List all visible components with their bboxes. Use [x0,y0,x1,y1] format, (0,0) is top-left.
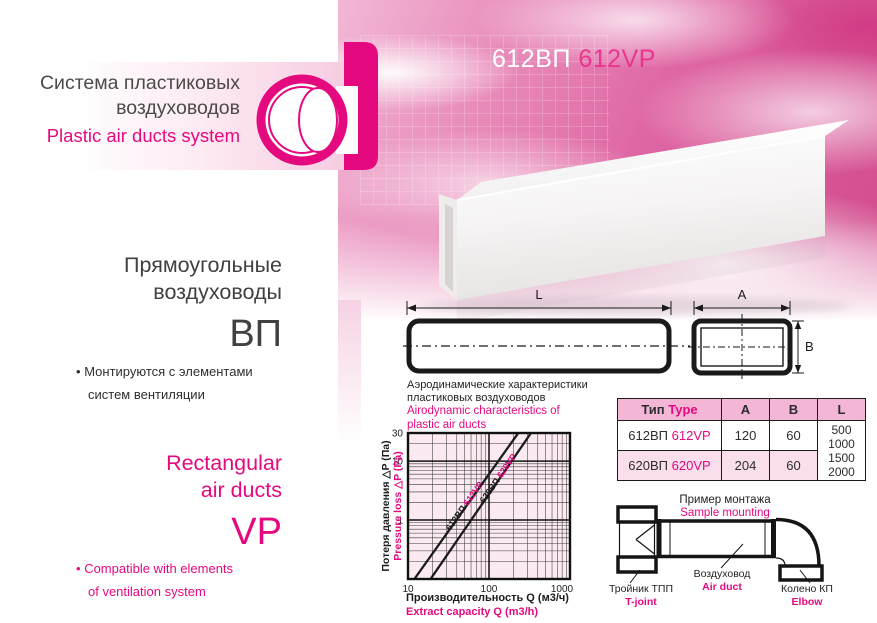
logo-pipe-lens [299,88,337,152]
dim-label-B: B [805,339,814,354]
heading-ru: Прямоугольные воздуховоды ВП [42,252,282,354]
elbow-label-en: Elbow [762,596,852,609]
elbow-bottom-socket [780,566,822,580]
tjoint-label-ru: Тройник ТПП [596,583,686,596]
length-option: 1500 [818,451,865,465]
duct-label: Воздуховод Air duct [677,568,767,593]
product-code-en: 612VP [578,45,656,73]
bullet-ru: • Монтируются с элементами систем вентил… [76,360,253,406]
header-b: B [770,399,818,421]
tjoint-bottom-socket [618,557,656,572]
heading-en-line1: Rectangular [42,450,282,477]
bullet-dot: • [76,364,81,379]
tjoint-label-en: T-joint [596,596,686,609]
bullet-dot: • [76,561,81,576]
chart-title-ru-2: пластиковых воздуховодов [407,392,612,405]
elbow-label-ru: Колено КП [762,583,852,596]
elbow-label: Колено КП Elbow [762,583,852,608]
cell-a-620: 204 [722,451,770,481]
type-en: 612VP [672,428,711,443]
dimension-drawing-length: L [403,288,690,376]
tjoint-top-socket [618,507,656,522]
type-ru: 620ВП [628,458,668,473]
length-option: 500 [818,423,865,437]
table-header-row: Тип Type A B L [618,399,866,421]
bullet-en-line1: Compatible with elements [84,561,233,576]
catalog-page: Система пластиковых воздуховодов Plastic… [0,0,877,623]
chart-title-en-1: Airodynamic characteristics of [407,405,612,419]
bullet-en: • Compatible with elements of ventilatio… [76,557,233,603]
series-code-ru: ВП [42,314,282,354]
brand-title-en: Plastic air ducts system [10,124,240,148]
x-axis-label: Производительность Q (м3/ч) Extract capa… [406,591,569,619]
bullet-en-line2: of ventilation system [88,580,233,603]
type-en: 620VP [672,458,711,473]
spec-table: Тип Type A B L 612ВП 612VP 120 60 500 10… [617,398,866,481]
brand-title-ru-1: Система пластиковых [10,71,240,96]
dim-label-A: A [738,288,747,302]
x-axis-label-ru: Производительность Q (м3/ч) [406,591,569,605]
cell-a-612: 120 [722,421,770,451]
dimension-drawing-section: A B [688,288,818,380]
product-title: 612ВП 612VP [492,45,656,74]
heading-en: Rectangular air ducts VP [42,450,282,552]
dim-arrow [795,365,801,373]
aerodynamic-chart: 612ВП 612VP620ВП 620VP11030101001000 [370,424,605,596]
series-code-en: VP [42,512,282,552]
heading-ru-line1: Прямоугольные [42,252,282,279]
header-type-en: Type [668,402,697,417]
bullet-ru-line2: систем вентиляции [88,383,253,406]
dim-arrow [662,305,671,312]
cell-b-620: 60 [770,451,818,481]
y-axis-label: Потеря давления △P (Па) Pressure loss △P… [380,433,404,579]
header-type: Тип Type [618,399,722,421]
tjoint-chevron [636,525,655,540]
chart-title-ru-1: Аэродинамические характеристики [407,379,612,392]
y-axis-label-en: Pressure loss △P (Pa) [392,433,404,579]
dim-arrow [694,305,703,312]
length-option: 2000 [818,465,865,479]
dim-arrow [407,305,416,312]
y-axis-label-ru: Потеря давления △P (Па) [380,433,392,579]
bullet-ru-line1: Монтируются с элементами [84,364,252,379]
duct-end-opening [445,204,453,292]
brand-title-ru-2: воздуховодов [10,96,240,121]
photo-left-strip [338,300,361,470]
cell-b-612: 60 [770,421,818,451]
duct-label-en: Air duct [677,581,767,594]
brand-text: Система пластиковых воздуховодов Plastic… [10,71,240,148]
cell-lengths: 500 1000 1500 2000 [818,421,866,481]
dim-arrow [781,305,790,312]
type-ru: 612ВП [628,428,668,443]
product-code-ru: 612ВП [492,45,571,73]
heading-ru-line2: воздуховоды [42,279,282,306]
brand-logo [252,42,378,170]
cell-type-612: 612ВП 612VP [618,421,722,451]
tjoint-label: Тройник ТПП T-joint [596,583,686,608]
dim-label-L: L [535,288,542,302]
cell-type-620: 620ВП 620VP [618,451,722,481]
table-row: 612ВП 612VP 120 60 500 1000 1500 2000 [618,421,866,451]
x-axis-label-en: Extract capacity Q (m3/h) [406,605,569,619]
tjoint-chevron [636,540,655,555]
header-type-ru: Тип [641,402,664,417]
header-a: A [722,399,770,421]
dim-arrow [795,321,801,329]
heading-en-line2: air ducts [42,477,282,504]
duct-label-ru: Воздуховод [677,568,767,581]
length-option: 1000 [818,437,865,451]
header-l: L [818,399,866,421]
